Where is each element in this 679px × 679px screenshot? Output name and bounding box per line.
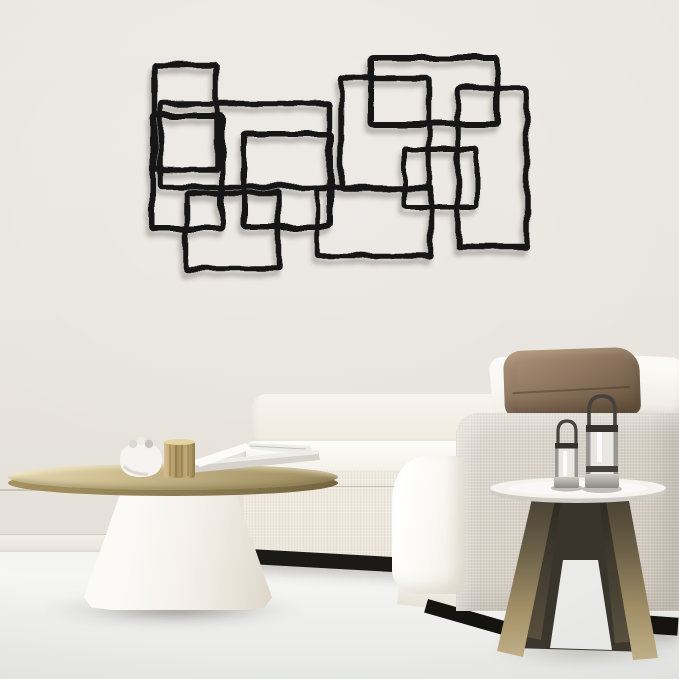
small-lantern-base bbox=[554, 477, 579, 488]
small-lantern-highlight bbox=[563, 451, 567, 476]
gold-cup bbox=[164, 441, 195, 478]
living-room-scene bbox=[0, 0, 679, 679]
decor-layer bbox=[0, 0, 679, 679]
small-lantern-cap bbox=[555, 443, 578, 449]
large-lantern-highlight bbox=[597, 432, 602, 462]
bowl-ball bbox=[129, 440, 137, 448]
side-table bbox=[490, 478, 666, 661]
large-lantern-base bbox=[585, 474, 619, 488]
white-bowl bbox=[120, 443, 162, 477]
lanterns bbox=[551, 396, 622, 493]
gold-cup-rim bbox=[164, 439, 195, 445]
bowl-ball bbox=[137, 437, 145, 445]
coffee-table-decor bbox=[120, 437, 320, 478]
bowl-ball bbox=[145, 440, 153, 448]
large-lantern-cap bbox=[586, 425, 618, 432]
large-lantern-band bbox=[586, 466, 618, 472]
